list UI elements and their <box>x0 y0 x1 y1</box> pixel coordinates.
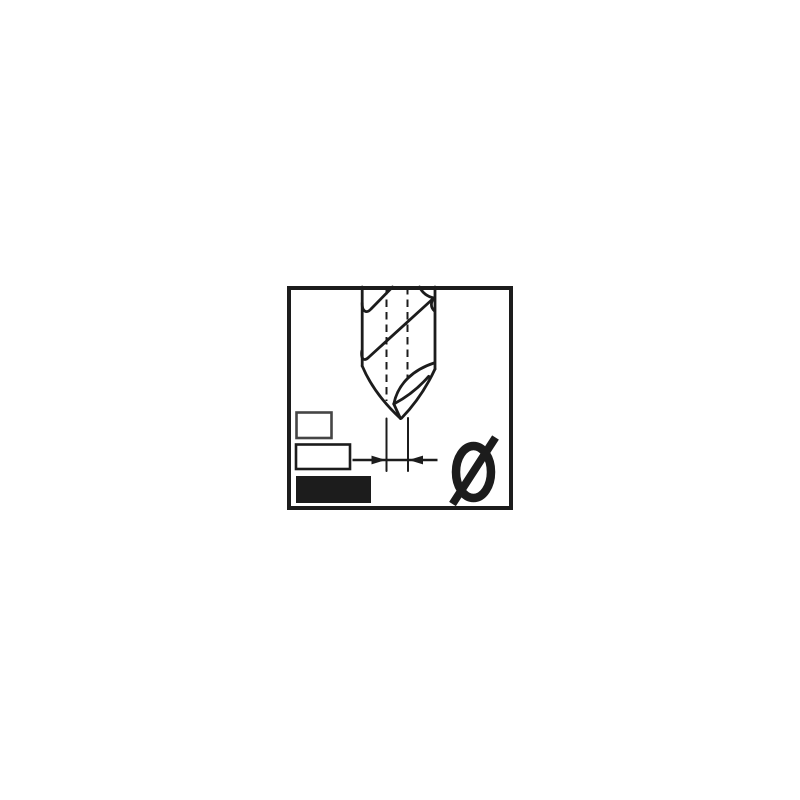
drill-point-left <box>362 366 400 419</box>
diameter-symbol-icon: Ø <box>453 438 496 505</box>
swatch-large-filled <box>296 476 371 503</box>
drill-diameter-diagram: Ø <box>0 0 800 800</box>
dimension-arrows-icon <box>353 418 438 471</box>
diagram-border <box>289 288 511 508</box>
swatch-small-outline <box>297 413 332 439</box>
size-swatches <box>296 413 371 504</box>
flute-line-upper <box>362 287 392 312</box>
drill-bit-icon <box>362 287 435 419</box>
dimension-arrowhead-left <box>372 456 386 465</box>
product-image-canvas: Ø <box>0 0 800 800</box>
dimension-arrowhead-right <box>409 456 423 465</box>
swatch-medium-outline <box>296 445 350 470</box>
